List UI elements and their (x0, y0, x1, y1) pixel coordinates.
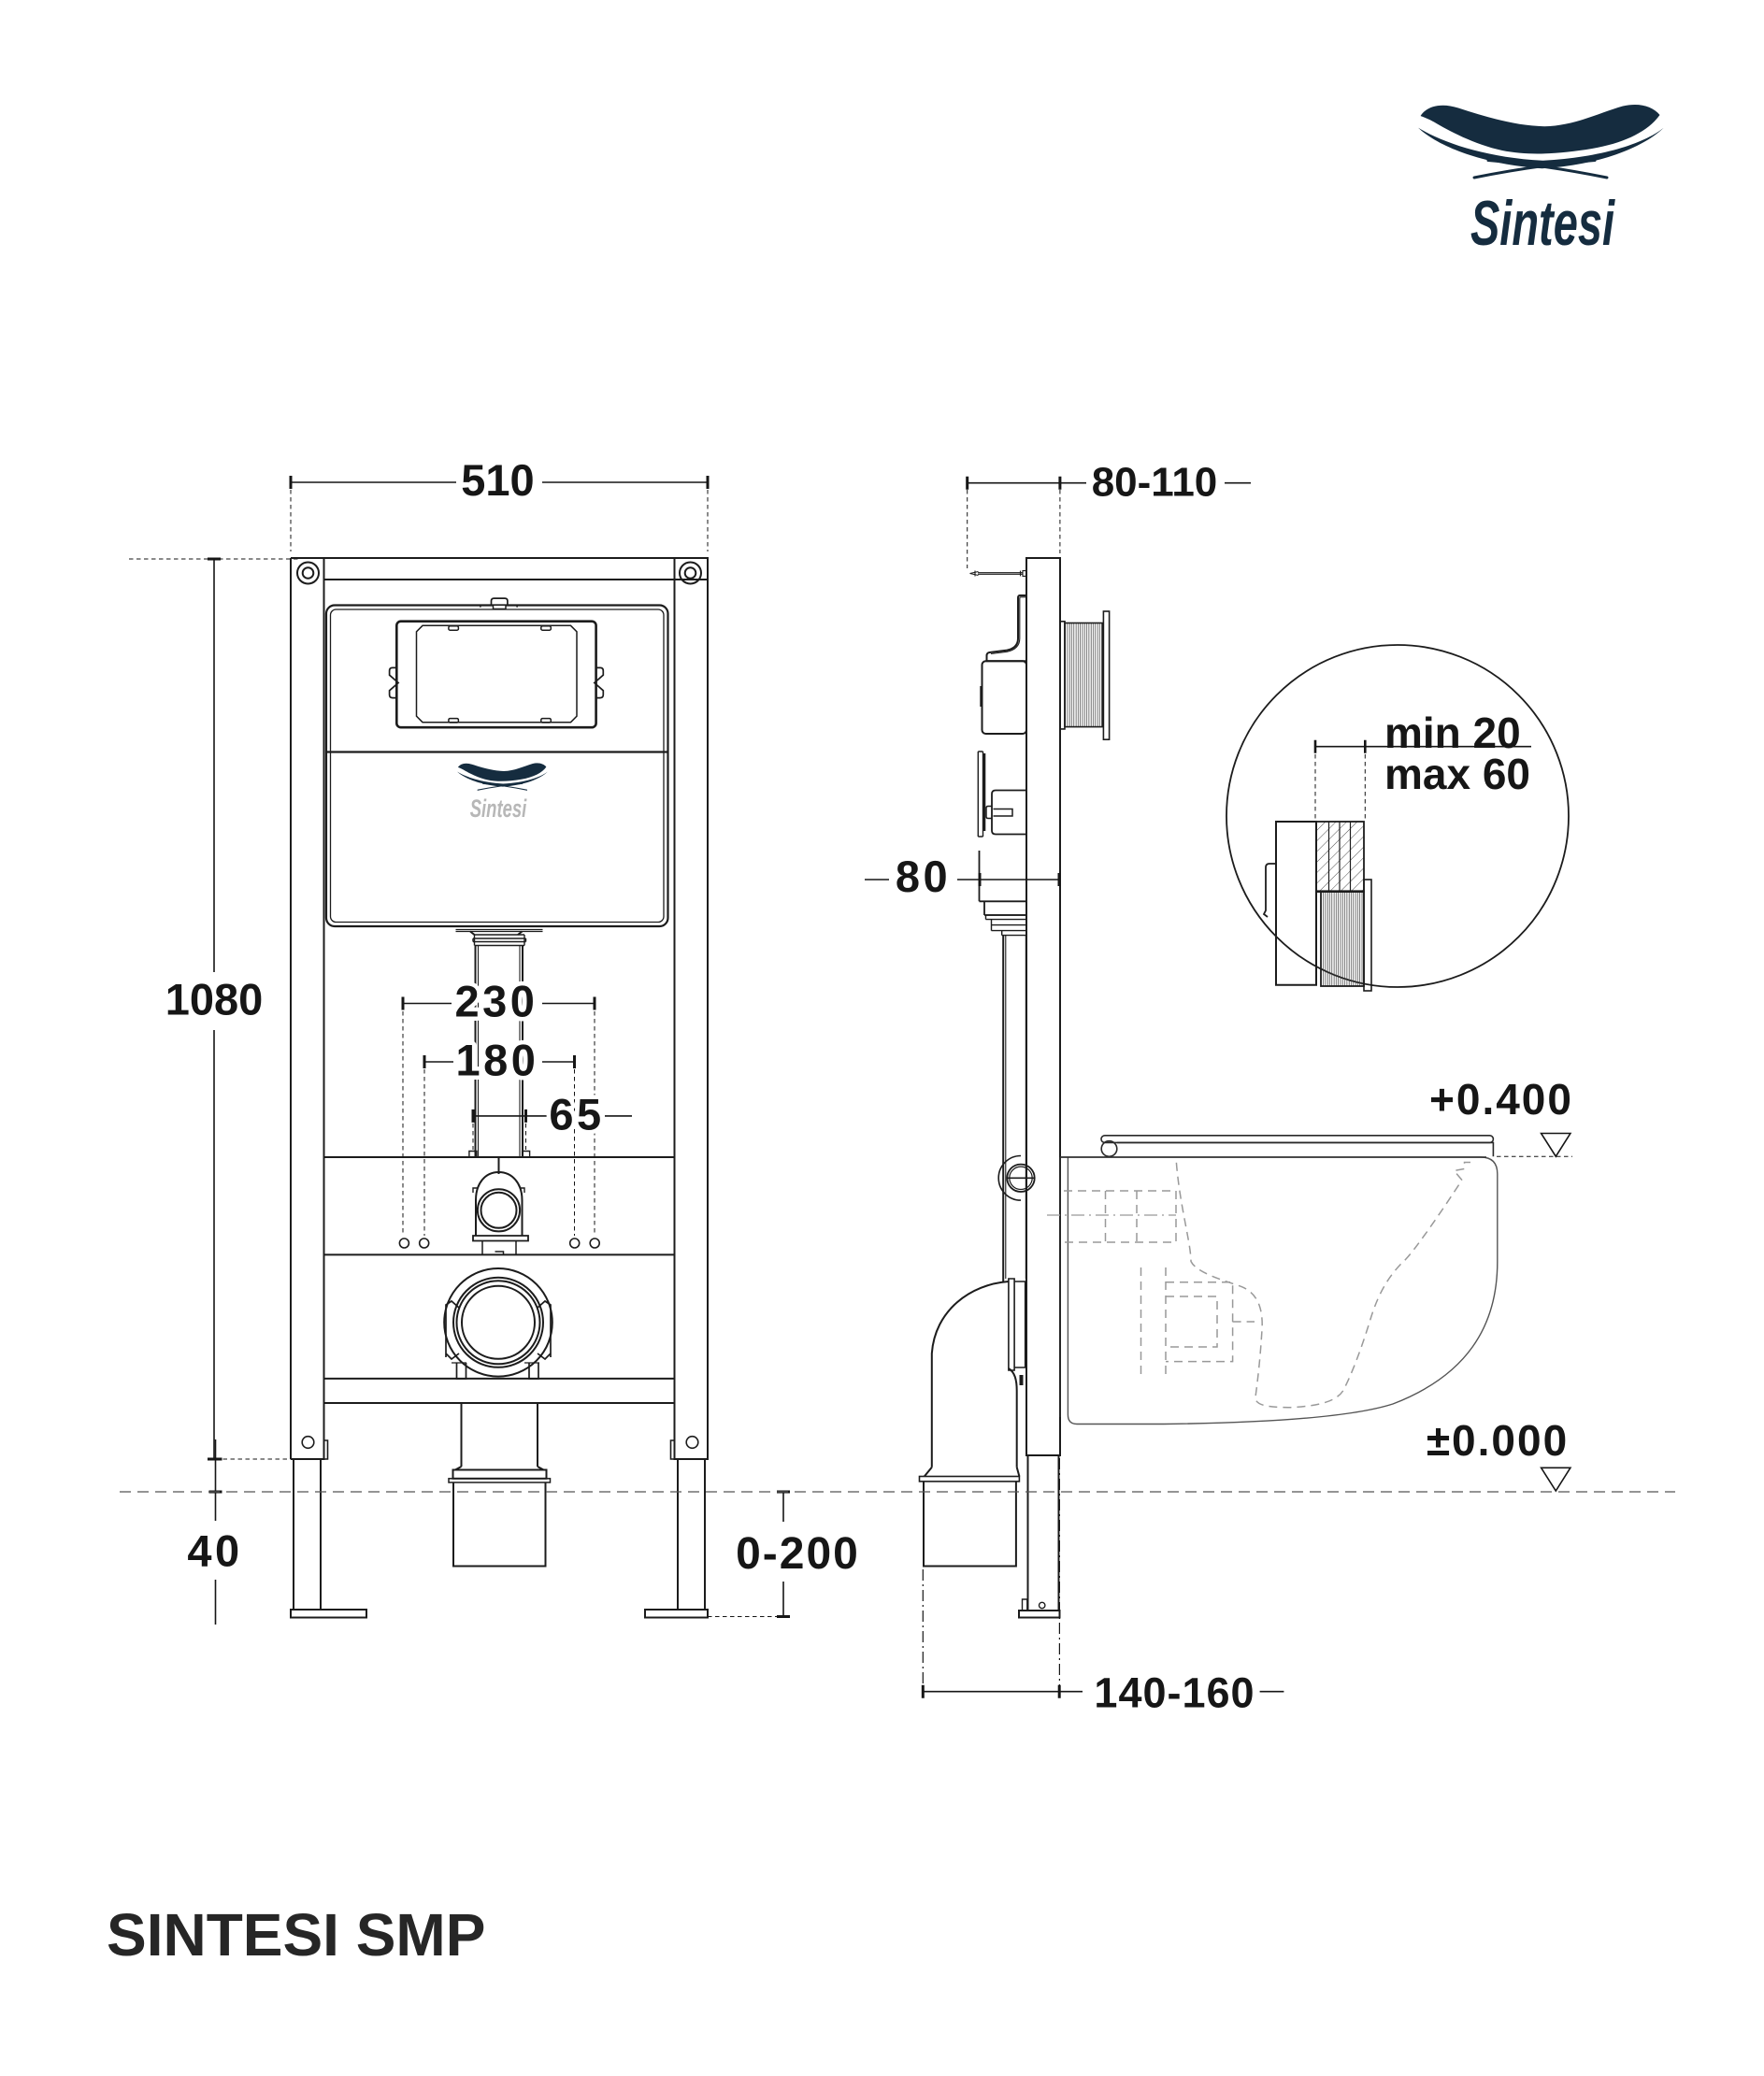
svg-text:80-110: 80-110 (1092, 460, 1218, 506)
svg-text:0-200: 0-200 (736, 1529, 860, 1579)
svg-text:140-160: 140-160 (1094, 1669, 1255, 1717)
svg-text:Sintesi: Sintesi (470, 795, 527, 823)
svg-text:Sintesi: Sintesi (1470, 188, 1615, 259)
svg-text:+0.400: +0.400 (1429, 1075, 1573, 1124)
svg-text:510: 510 (461, 455, 534, 505)
svg-text:80: 80 (896, 852, 951, 901)
svg-text:1080: 1080 (165, 975, 264, 1024)
svg-text:±0.000: ±0.000 (1427, 1416, 1569, 1465)
svg-text:65: 65 (549, 1090, 604, 1139)
svg-text:40: 40 (187, 1526, 242, 1576)
svg-text:230: 230 (455, 977, 538, 1026)
svg-text:180: 180 (456, 1036, 539, 1085)
svg-text:max 60: max 60 (1384, 750, 1530, 798)
svg-text:SINTESI SMP: SINTESI SMP (107, 1901, 485, 1969)
